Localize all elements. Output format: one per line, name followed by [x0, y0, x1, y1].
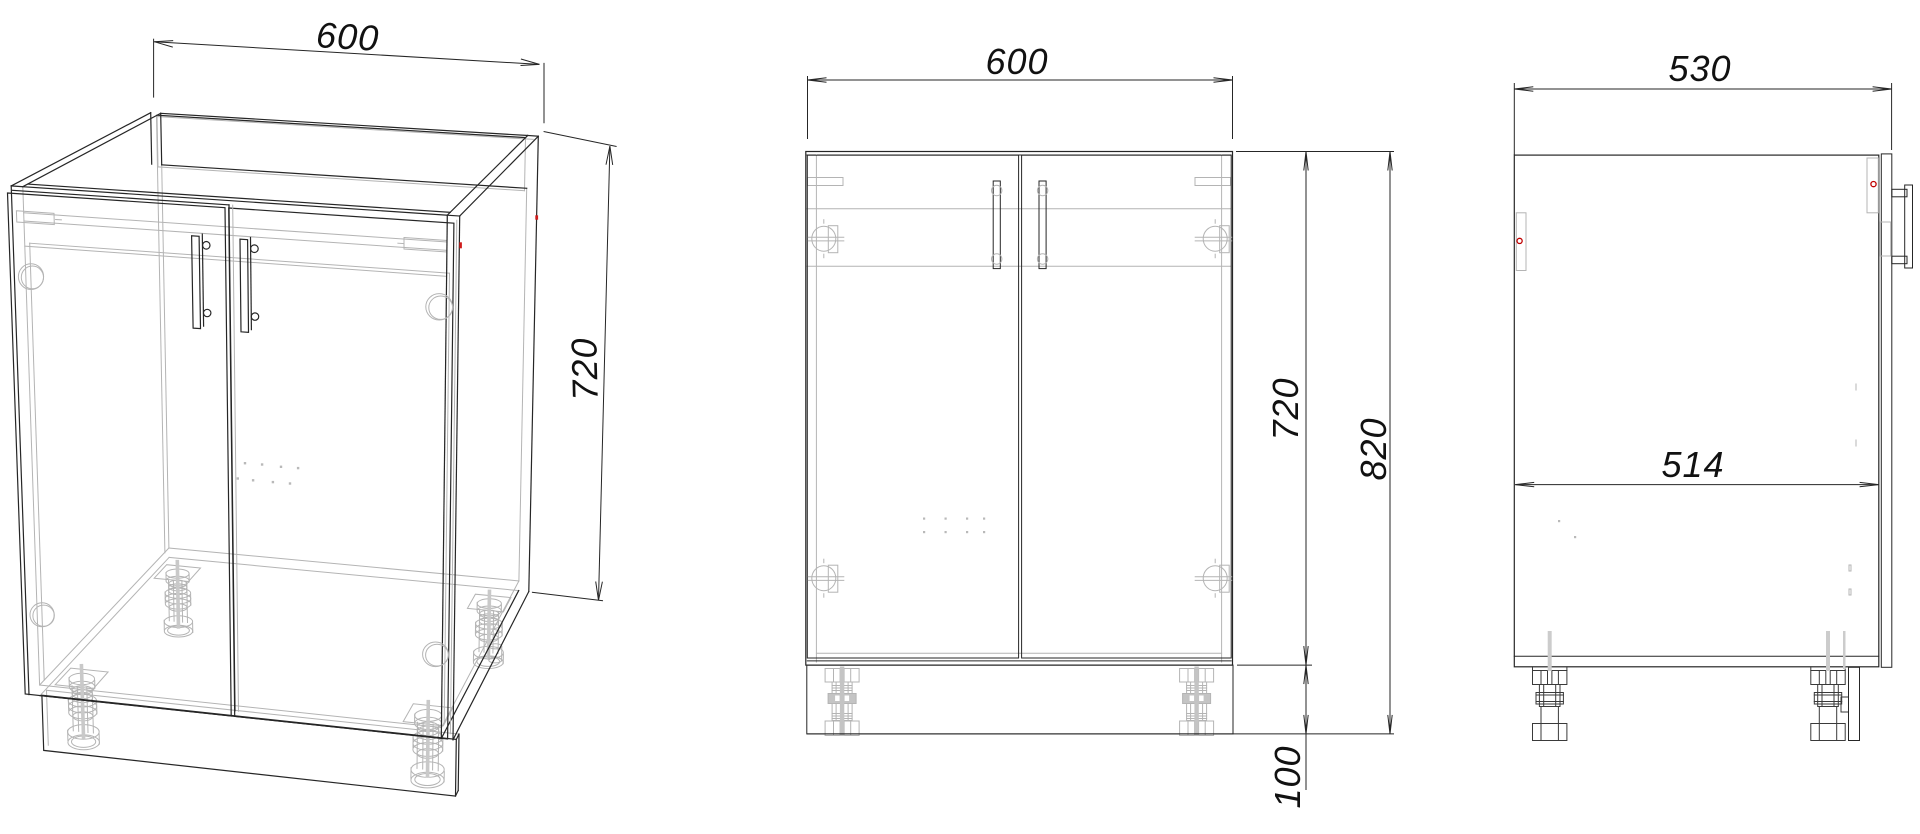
svg-text:600: 600 — [985, 41, 1048, 82]
svg-text:820: 820 — [1353, 417, 1394, 480]
svg-text:100: 100 — [1267, 745, 1308, 808]
svg-text:530: 530 — [1668, 48, 1731, 89]
svg-text:720: 720 — [563, 337, 606, 401]
svg-text:514: 514 — [1661, 444, 1724, 485]
svg-text:600: 600 — [315, 14, 380, 59]
svg-text:720: 720 — [1265, 377, 1306, 440]
